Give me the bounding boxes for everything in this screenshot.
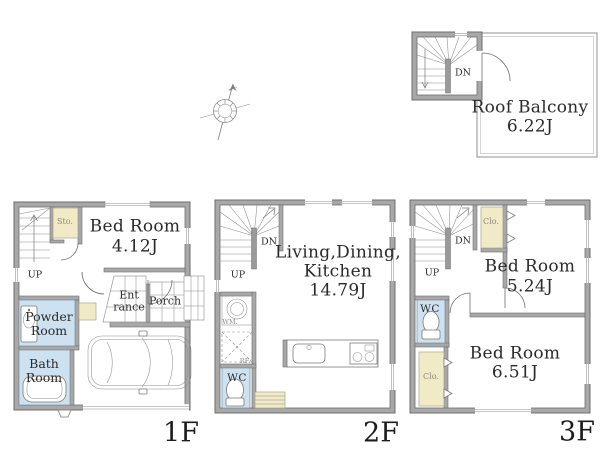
f2-ldk-label-1: Living,Dining, — [275, 245, 401, 262]
f2-ldk-label-2: Kitchen — [304, 264, 373, 281]
f3-bedroom2-name: Bed Room — [470, 346, 561, 363]
floor-label-2f: 2F — [363, 420, 399, 447]
f3-bedroom1-size: 5.24J — [507, 279, 553, 296]
f1-storage-label: Sto. — [57, 218, 73, 226]
f1-powder-label-1: Powder — [25, 311, 73, 324]
floor-plan-sheet: Bed Room 4.12J Sto. UP Ent rance Porch P… — [0, 0, 600, 457]
f2-kitchen-counter — [287, 340, 378, 367]
roof-balcony-name: Roof Balcony — [472, 100, 589, 117]
floor-3f-plan — [405, 196, 600, 448]
f2-up-label: UP — [231, 270, 245, 280]
roof-plan — [405, 25, 600, 165]
f3-up-label: UP — [425, 268, 439, 278]
f2-fridge-label: RF. — [240, 358, 250, 365]
f1-bath-label-1: Bath — [29, 358, 59, 371]
f3-closet-top-label: Clo. — [483, 218, 499, 226]
f3-wc-label: WC — [420, 304, 440, 315]
roof-balcony-outline — [477, 33, 597, 157]
f1-bedroom-name: Bed Room — [90, 219, 181, 236]
f2-steps — [255, 392, 285, 408]
f3-dn-label: DN — [455, 236, 471, 246]
f1-bath-label-2: Room — [26, 372, 62, 385]
floor-label-1f: 1F — [163, 420, 199, 447]
f1-bedroom-size: 4.12J — [112, 239, 158, 256]
f3-bedroom1-name: Bed Room — [485, 259, 576, 276]
f1-entrance-label-2: rance — [113, 302, 145, 313]
f2-wc-label: WC — [227, 373, 247, 384]
f2-ldk-size: 14.79J — [309, 283, 366, 300]
roof-door — [482, 53, 510, 81]
f1-up-label: UP — [28, 270, 42, 280]
f1-entrance-label-1: Ent — [119, 290, 139, 301]
f2-dn-label: DN — [261, 237, 277, 247]
f3-bedroom2-size: 6.51J — [492, 365, 538, 382]
floor-label-3f: 3F — [559, 419, 595, 446]
f1-powder-label-2: Room — [31, 325, 67, 338]
f1-porch-label: Porch — [149, 296, 181, 307]
f2-washer-label: WM. — [222, 319, 237, 326]
roof-balcony-size: 6.22J — [507, 119, 553, 136]
f3-closet-bottom-label: Clo. — [423, 373, 439, 381]
compass-icon — [192, 78, 258, 144]
roof-dn-label: DN — [455, 68, 471, 78]
